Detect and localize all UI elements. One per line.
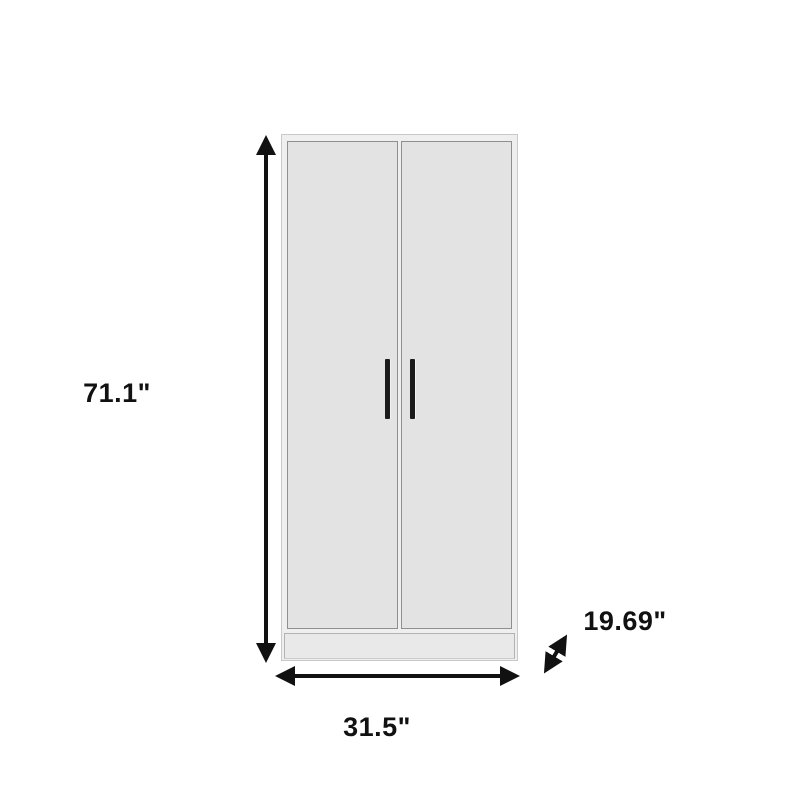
wardrobe-left-door — [287, 141, 398, 629]
product-dimension-diagram: 71.1" 31.5" 19.69" — [0, 0, 800, 800]
wardrobe-doors — [287, 141, 512, 629]
left-door-handle-icon — [385, 359, 390, 419]
wardrobe-body — [281, 134, 518, 661]
wardrobe-base-panel — [284, 633, 515, 659]
wardrobe-right-door — [401, 141, 512, 629]
depth-dimension-label: 19.69" — [560, 606, 690, 637]
width-dimension-label: 31.5" — [312, 712, 442, 743]
right-door-handle-icon — [410, 359, 415, 419]
depth-dimension-arrow-icon — [546, 638, 565, 670]
height-dimension-label: 71.1" — [52, 378, 182, 409]
